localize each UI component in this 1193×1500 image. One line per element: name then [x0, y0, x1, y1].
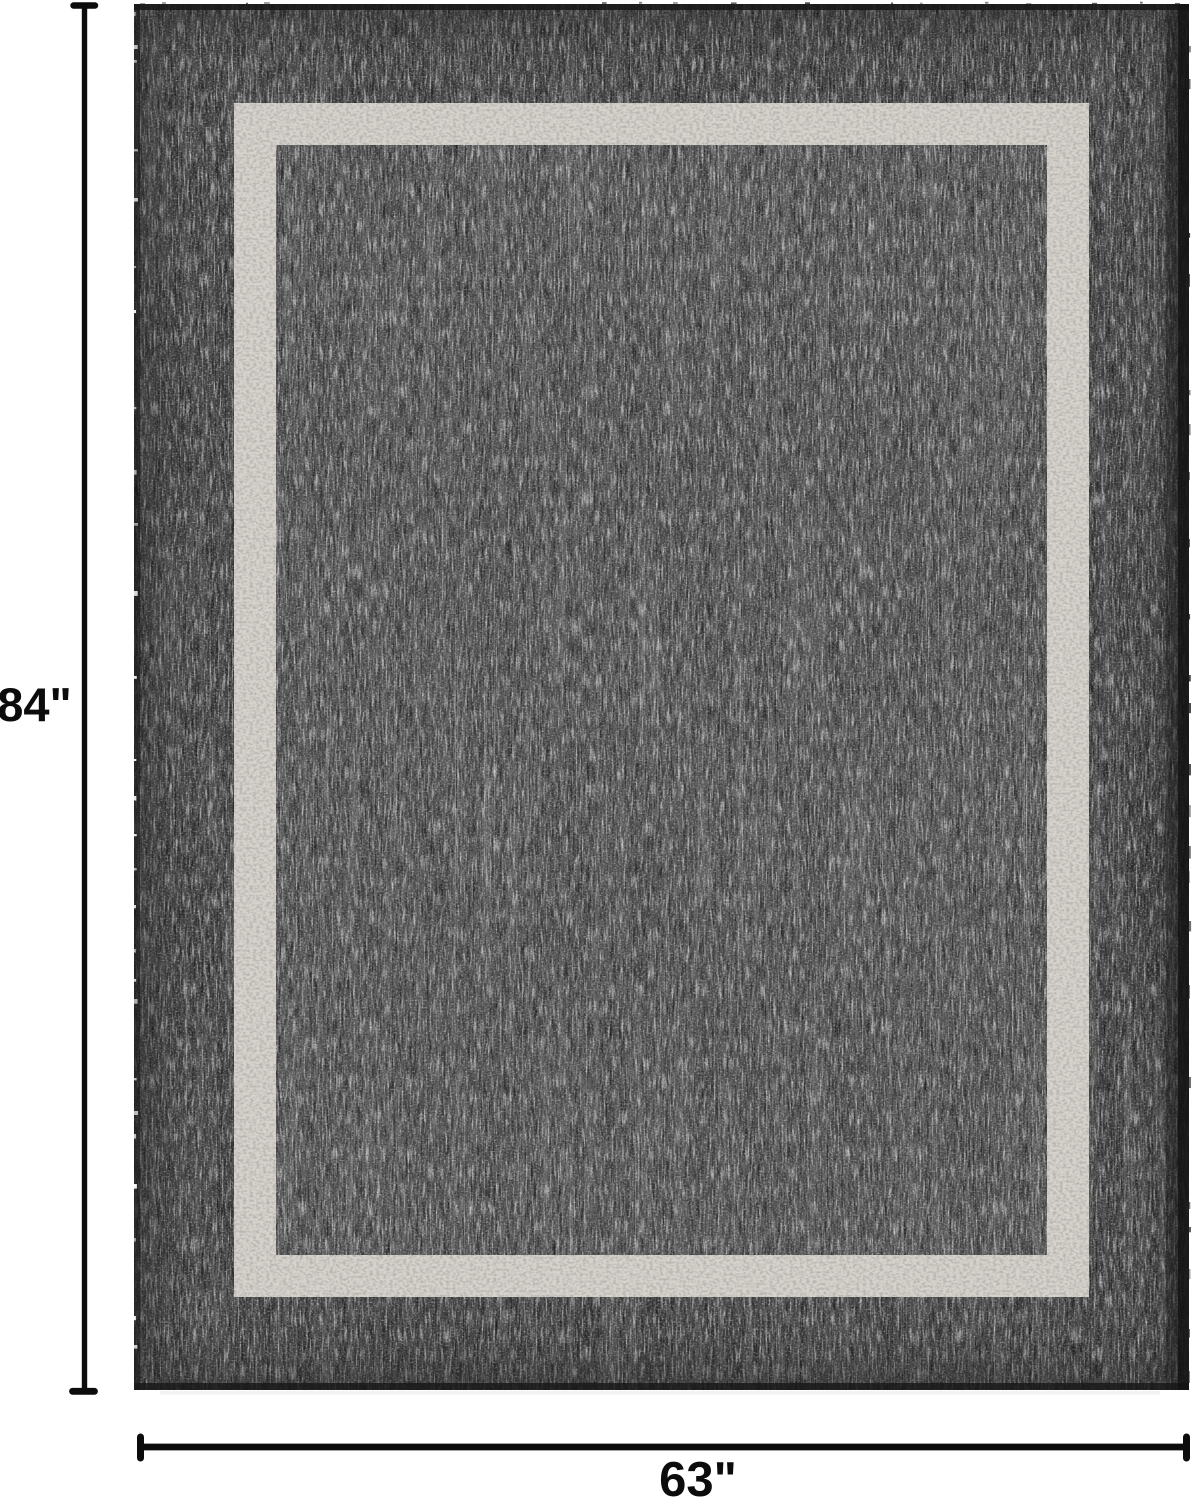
svg-text:63": 63" — [659, 1453, 737, 1500]
svg-text:84": 84" — [0, 678, 72, 731]
